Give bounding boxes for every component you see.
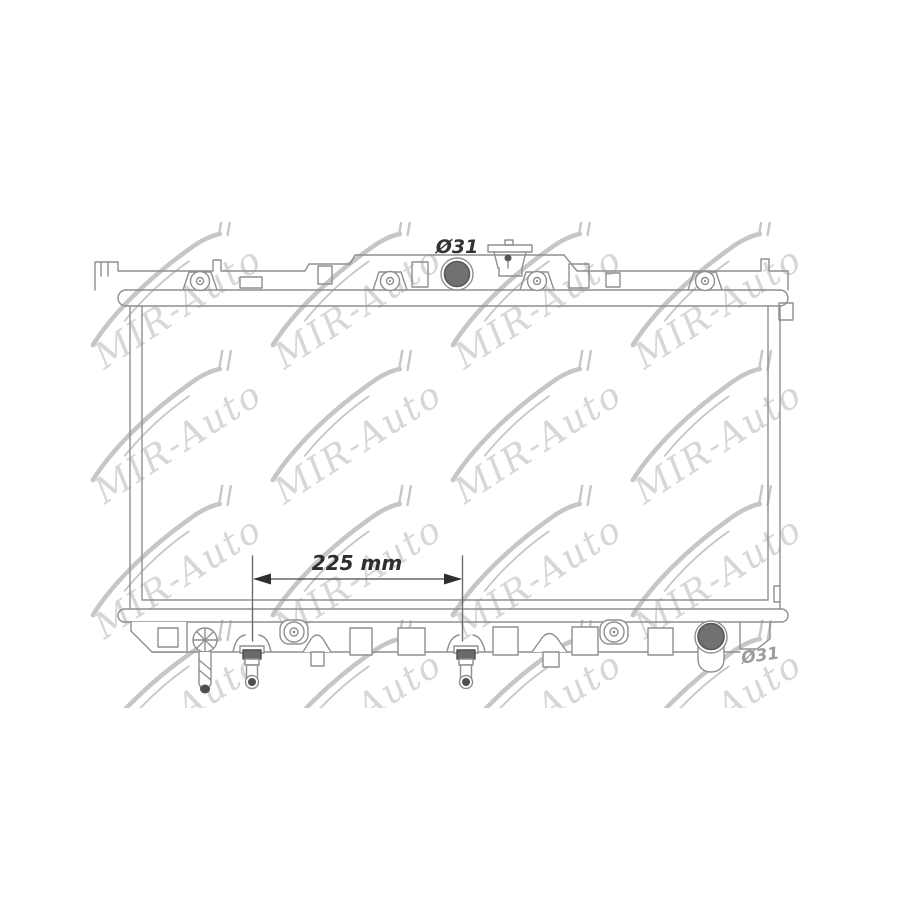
tank-window bbox=[648, 628, 673, 655]
watermark-instance bbox=[68, 346, 270, 513]
watermark-instance bbox=[68, 211, 270, 378]
inlet-port bbox=[441, 258, 473, 290]
dimension-arrowhead-left bbox=[253, 574, 271, 585]
watermark-instance bbox=[428, 346, 630, 513]
tank-window bbox=[350, 628, 372, 655]
mounting-boss bbox=[600, 620, 628, 644]
tank-window bbox=[398, 628, 425, 655]
watermark-instance bbox=[428, 481, 630, 648]
watermark-instance bbox=[248, 346, 450, 513]
top-port-diameter-label: Ø31 bbox=[435, 236, 479, 258]
watermark-layer bbox=[68, 211, 810, 783]
dimension-label: 225 mm bbox=[312, 551, 402, 575]
watermark-instance bbox=[428, 616, 630, 783]
watermark-instance bbox=[248, 211, 450, 378]
outlet-port bbox=[695, 621, 727, 672]
filler-cap bbox=[488, 240, 532, 276]
top-left-bracket-slot bbox=[101, 262, 108, 276]
radiator-technical-drawing: MIR-Auto bbox=[0, 0, 915, 915]
product-image: MIR-Auto bbox=[0, 0, 915, 915]
tank-window bbox=[572, 627, 598, 655]
tank-window bbox=[493, 627, 518, 655]
dimension-arrowhead-right bbox=[444, 574, 462, 585]
mounting-boss bbox=[280, 620, 308, 644]
